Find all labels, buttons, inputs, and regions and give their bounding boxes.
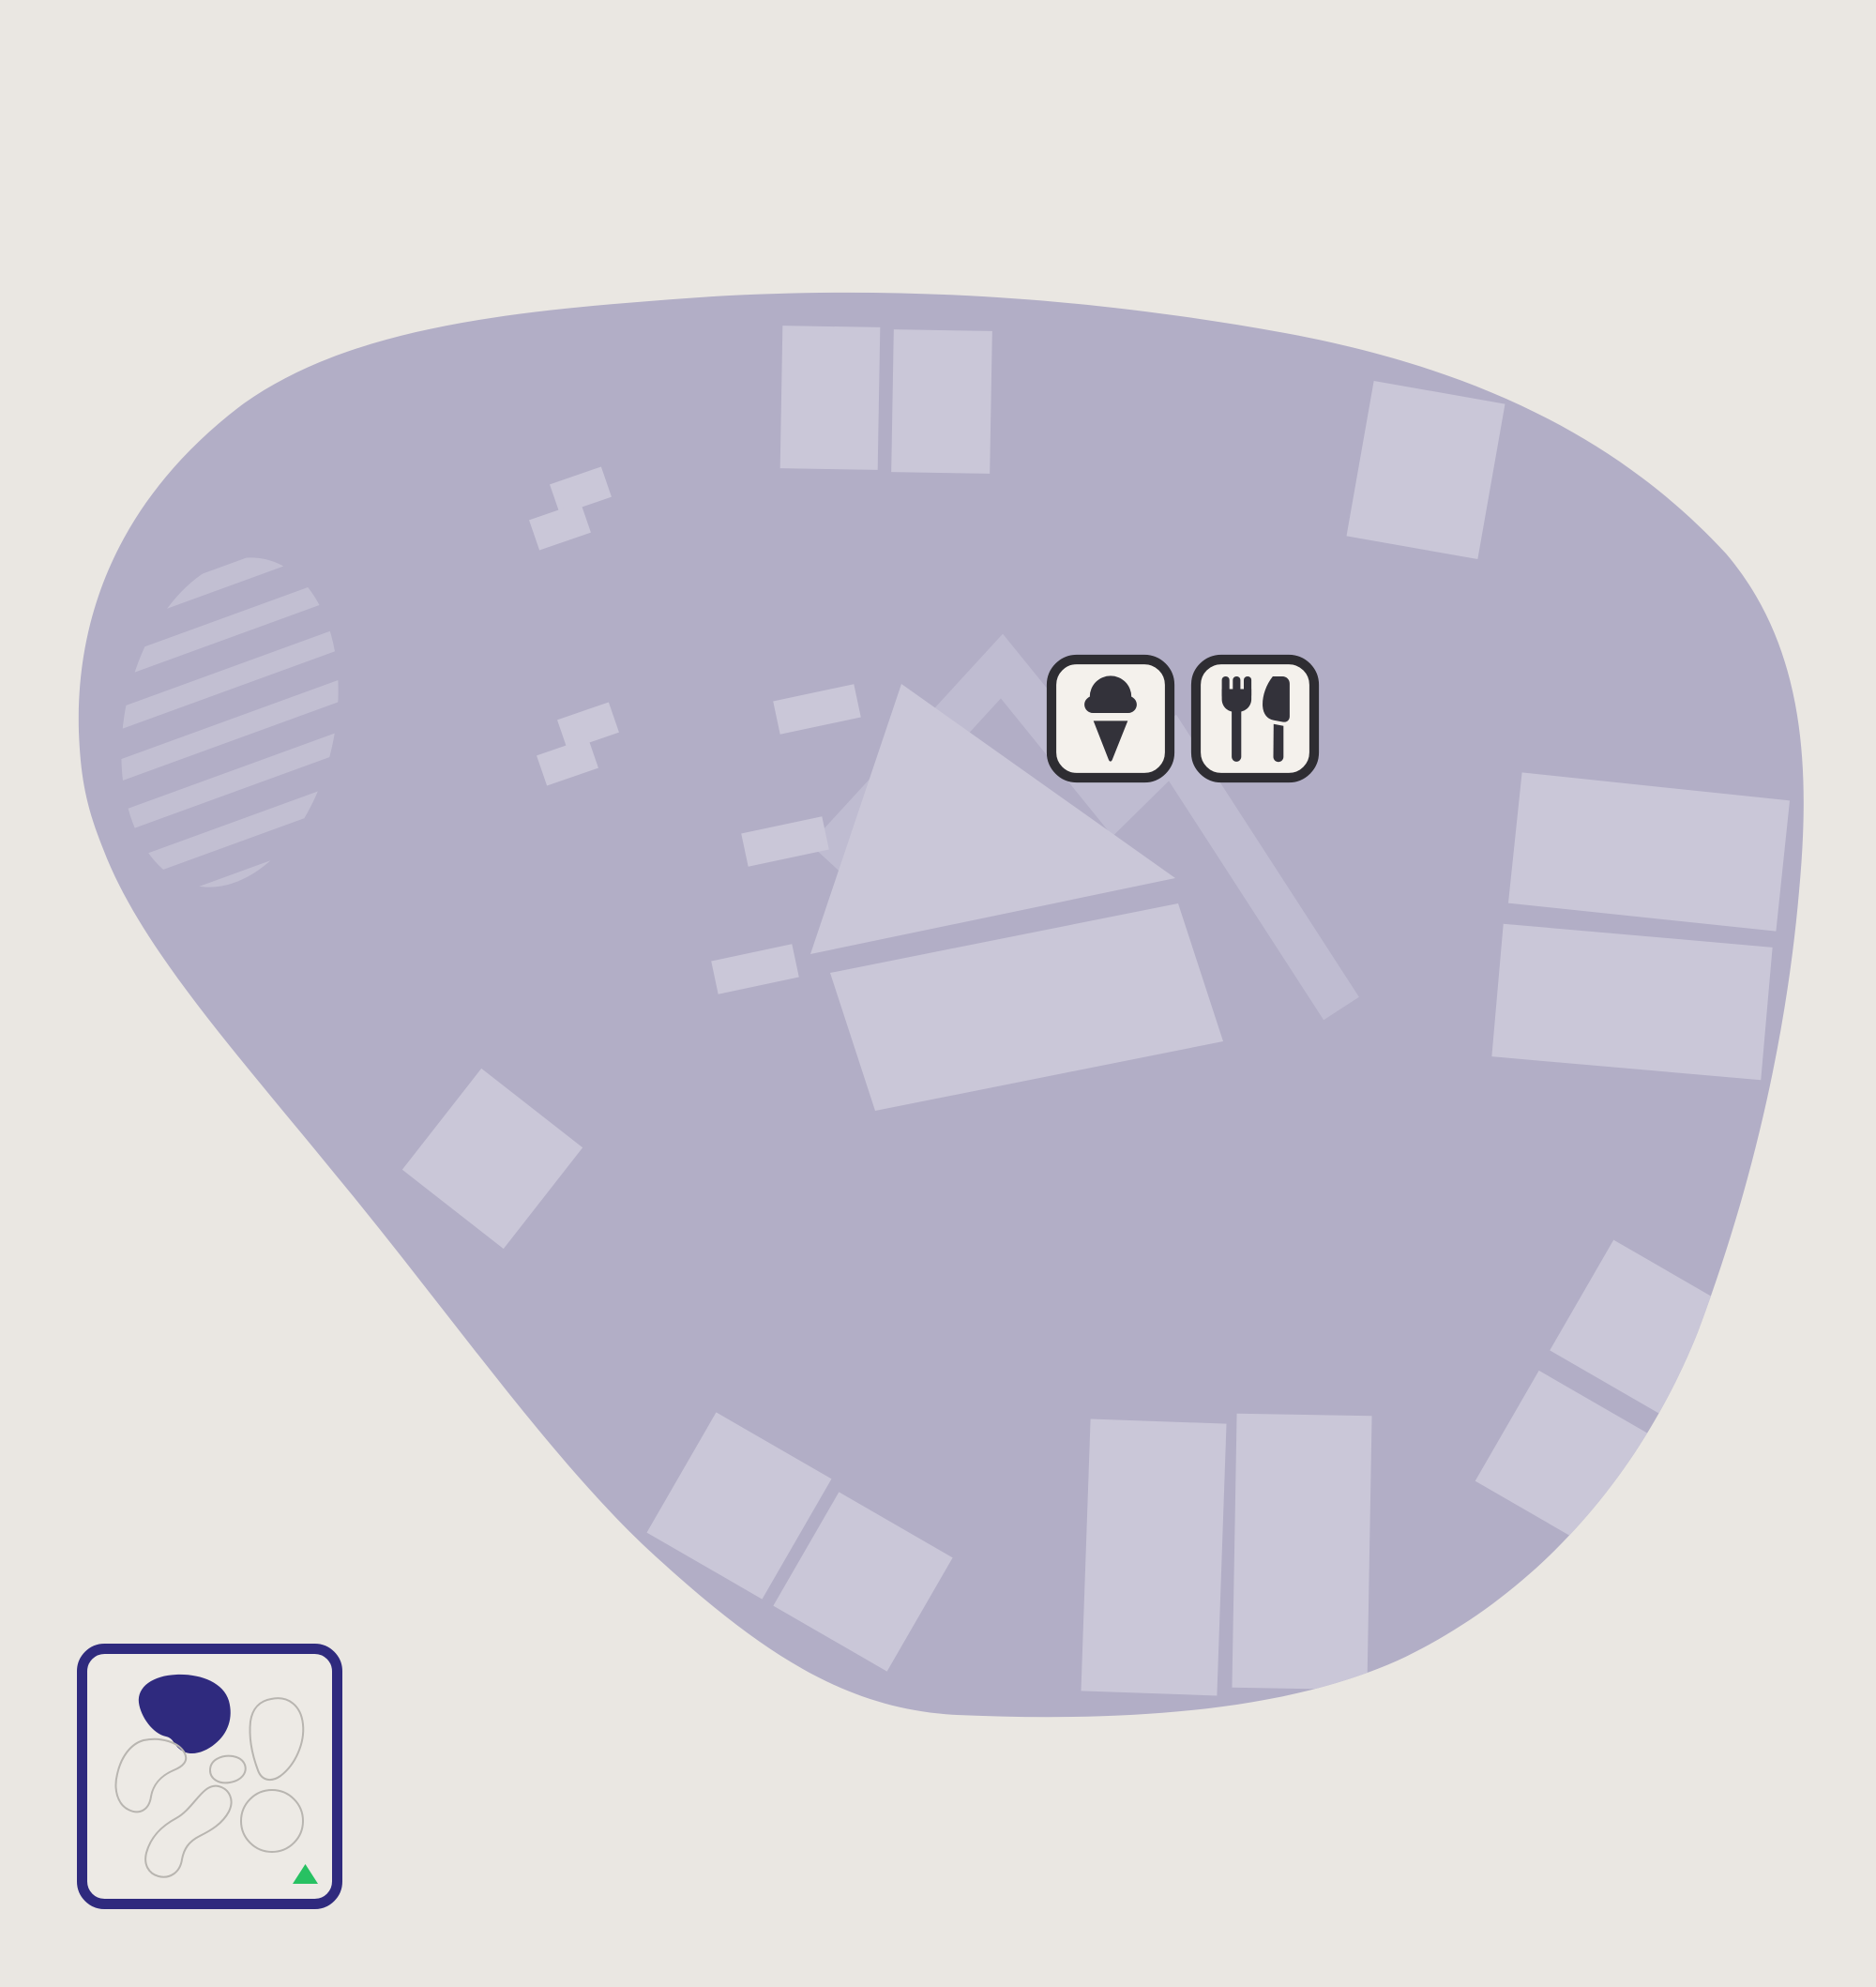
building-footprint xyxy=(1232,1414,1371,1690)
building-footprint xyxy=(780,326,881,470)
ice-cream-poi-button[interactable] xyxy=(1043,651,1178,786)
map-viewport xyxy=(0,0,1876,1987)
building-footprint xyxy=(891,329,992,474)
minimap[interactable] xyxy=(77,1644,342,1909)
building-footprint xyxy=(1508,772,1790,931)
building-footprint xyxy=(1346,381,1505,559)
restaurant-poi-button[interactable] xyxy=(1188,651,1323,786)
button-frame xyxy=(1196,660,1314,778)
building-footprint xyxy=(1491,924,1772,1081)
building-footprint xyxy=(1081,1419,1226,1696)
